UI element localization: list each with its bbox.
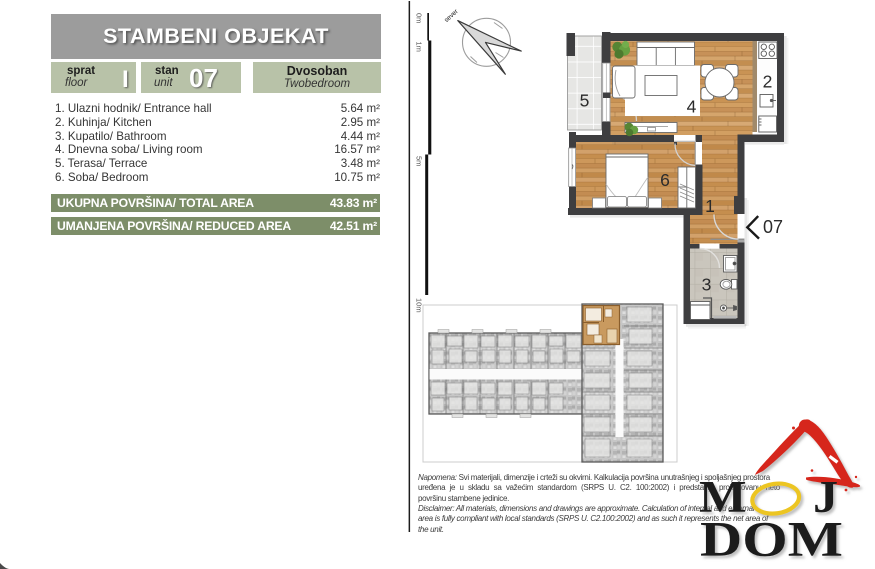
svg-text:sever: sever — [443, 8, 460, 24]
svg-text:1: 1 — [705, 196, 715, 216]
svg-text:5m: 5m — [415, 156, 424, 166]
svg-text:DOM: DOM — [700, 511, 843, 566]
svg-text:5: 5 — [580, 91, 590, 111]
svg-text:1m: 1m — [415, 42, 424, 52]
svg-text:4: 4 — [687, 97, 697, 117]
svg-text:0m: 0m — [415, 13, 424, 23]
svg-text:10m: 10m — [415, 298, 424, 313]
svg-text:3: 3 — [702, 275, 712, 295]
svg-text:2: 2 — [763, 72, 773, 92]
svg-text:6: 6 — [660, 170, 670, 190]
svg-text:07: 07 — [763, 217, 783, 237]
